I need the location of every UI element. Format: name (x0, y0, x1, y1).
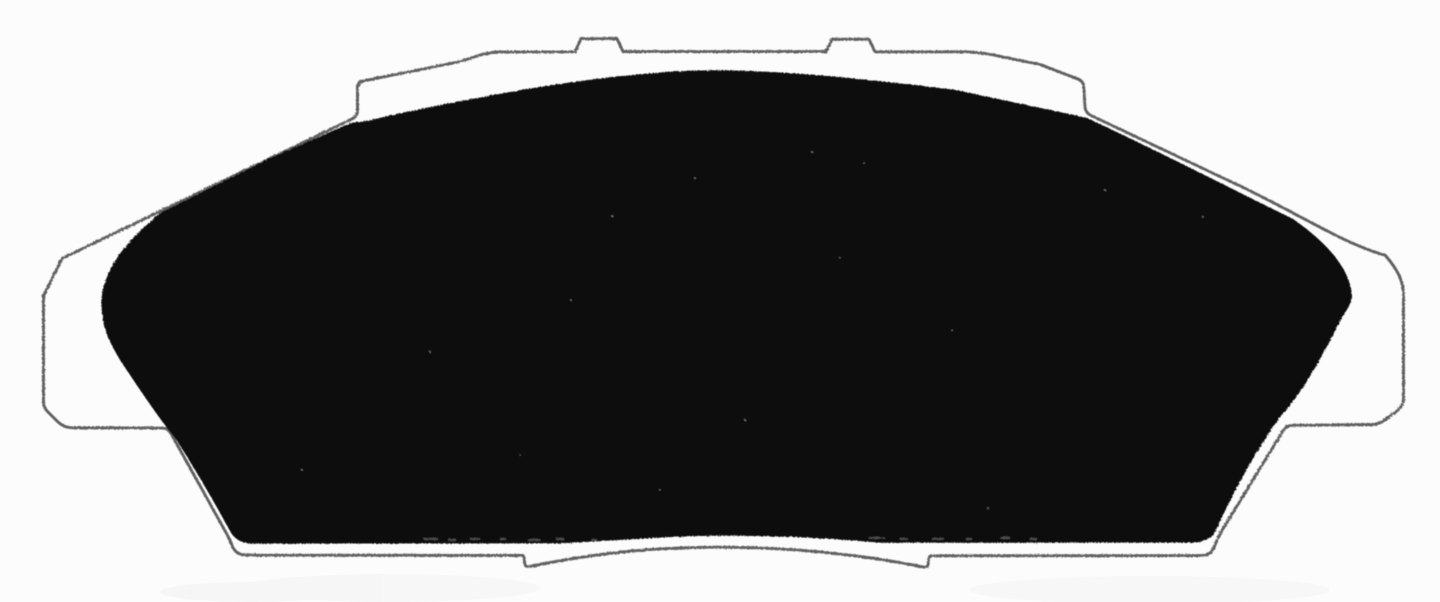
speckle-dot (429, 351, 431, 353)
artifact-dash (932, 538, 944, 540)
speckle-dot (863, 162, 865, 164)
artifact-dash (500, 538, 506, 540)
brake-pad-figure: Black-and-white scanned diagram of a dis… (0, 0, 1440, 602)
speckle-dot (611, 215, 613, 217)
artifact-dash (900, 538, 908, 540)
speckle-dot (1104, 189, 1106, 191)
speckle-dot (951, 329, 953, 331)
speckle-dot (987, 507, 989, 509)
artifact-dash (869, 537, 885, 539)
speckle-dot (839, 257, 841, 259)
scan-wash (160, 582, 340, 602)
brake-pad-figure-wrap: Black-and-white scanned diagram of a dis… (0, 0, 1440, 602)
artifact-dash (424, 538, 438, 540)
speckle-dot (519, 454, 521, 456)
speckle-dot (659, 489, 661, 491)
artifact-dash (966, 538, 972, 540)
artifact-dash (591, 539, 597, 541)
artifact-dash (1000, 537, 1010, 539)
speckle-dot (570, 299, 572, 301)
speckle-dot (301, 469, 303, 471)
artifact-dash (556, 538, 564, 540)
artifact-dash (528, 539, 540, 541)
speckle-dot (694, 177, 696, 179)
speckle-dot (811, 151, 813, 153)
speckle-dot (1202, 216, 1204, 218)
speckle-dot (744, 419, 746, 421)
artifact-dash (470, 538, 480, 540)
artifact-dash (1030, 538, 1037, 540)
artifact-dash (448, 539, 456, 541)
